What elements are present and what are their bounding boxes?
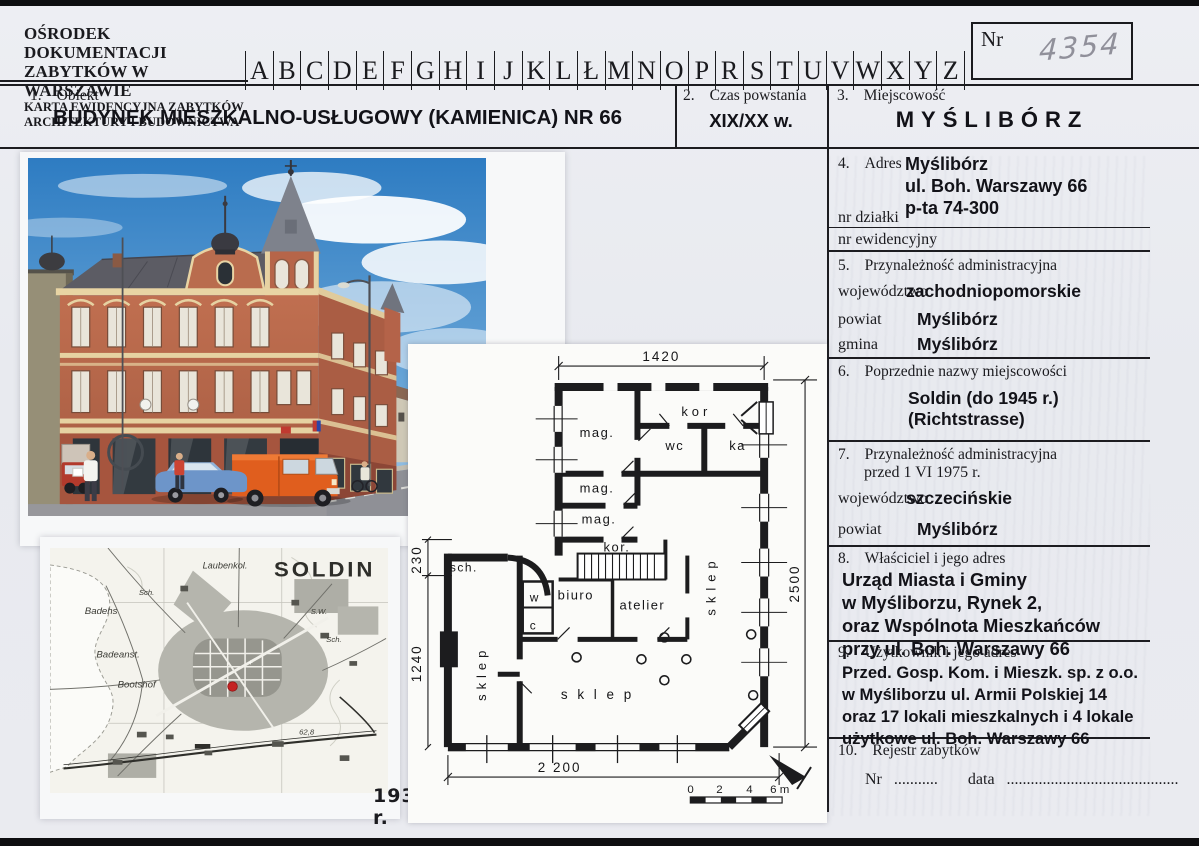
section-4-label: 4.Adres	[838, 155, 902, 173]
powiat-label: powiat	[838, 311, 882, 329]
scale-tick-label: 2	[716, 784, 722, 796]
card-number-box: Nr 4354	[971, 22, 1133, 80]
scale-bar: 0 2 4 6 m	[687, 784, 789, 803]
room-label-sch: sch.	[450, 561, 478, 575]
town-map-illustration: + Laubenkol.	[50, 548, 388, 793]
section-5-label: 5.Przynależność administracyjna	[838, 257, 1057, 275]
locality-value: MYŚLIBÓRZ	[827, 107, 1157, 133]
section-1-label: 1.Obiekt	[30, 87, 99, 105]
voivodeship-1975-value: szczecińskie	[906, 488, 1012, 509]
room-label-mag2: mag.	[580, 481, 615, 496]
room-label-ka: ka	[729, 438, 746, 453]
section-9-label: 9.Użytkownik i jego adres	[838, 644, 1017, 662]
map-label: 62,8	[299, 728, 315, 737]
room-label-sklep-left: sklep	[474, 646, 489, 701]
gmina-value: Myślibórz	[917, 334, 998, 355]
room-label-kor-mid: kor.	[604, 540, 631, 555]
stairs	[578, 554, 666, 580]
gmina-label: gmina	[838, 336, 878, 354]
dim-label-right: 2500	[787, 565, 802, 603]
section-7-label-line2: przed 1 VI 1975 r.	[864, 464, 981, 482]
map-label: Sch.	[139, 588, 154, 597]
room-label-sklep-main: s k l e p	[561, 687, 634, 702]
address-value: Myślibórz ul. Boh. Warszawy 66 p-ta 74-3…	[905, 153, 1087, 219]
dim-label-230: 230	[409, 545, 424, 573]
floorplan-drawing: 0 2 4 6 m 1420 2500 2 200 230 1240 mag. …	[408, 344, 827, 823]
scale-tick-label: 6 m	[770, 784, 789, 796]
object-name-value: BUDYNEK MIESZKALNO-USŁUGOWY (KAMIENICA) …	[0, 106, 675, 130]
construction-time-value: XIX/XX w.	[675, 110, 827, 132]
heritage-record-card: OŚRODEK DOKUMENTACJI ZABYTKÓW W WARSZAWI…	[0, 6, 1199, 838]
nr-label: Nr	[981, 27, 1003, 52]
map-label: Badeanst.	[96, 649, 139, 660]
map-title: SOLDIN	[274, 557, 375, 582]
room-label-sklep-right: sklep	[703, 555, 718, 615]
voivodeship-value: zachodniopomorskie	[906, 281, 1081, 302]
map-label: Bootshof	[118, 680, 157, 691]
scale-tick-label: 0	[687, 784, 693, 796]
church-mark: +	[248, 657, 253, 667]
map-label: Sch.	[326, 635, 341, 644]
room-label-w: w	[529, 590, 540, 604]
plot-number-label: nr działki	[838, 209, 899, 227]
satellite-dish	[188, 399, 199, 410]
section-7-label: 7.Przynależność administracyjna	[838, 446, 1057, 464]
section-6-label: 6.Poprzednie nazwy miejscowości	[838, 363, 1067, 381]
powiat-1975-label: powiat	[838, 521, 882, 539]
section-3-label: 3.Miejscowość	[837, 87, 945, 105]
room-label-biuro: biuro	[558, 587, 594, 602]
section-2-label: 2.Czas powstania	[683, 87, 806, 105]
powiat-value: Myślibórz	[917, 309, 998, 330]
dim-label-1240: 1240	[409, 644, 424, 682]
building-location-marker	[228, 682, 238, 691]
map-label: Laubenkol.	[203, 561, 248, 571]
scan-edge-bottom	[0, 838, 1199, 846]
record-number-label: nr ewidencyjny	[838, 231, 937, 249]
room-label-kor: kor	[681, 404, 711, 419]
map-label: S.W.	[311, 607, 327, 616]
registry-entry-row: Nr ........... data ....................…	[865, 771, 1179, 789]
satellite-dish	[140, 399, 151, 410]
former-names-value: Soldin (do 1945 r.) (Richtstrasse)	[908, 388, 1059, 430]
section-8-label: 8.Właściciel i jego adres	[838, 550, 1005, 568]
room-label-atelier: atelier	[619, 597, 665, 612]
nr-handwritten-value: 4354	[1038, 26, 1121, 67]
room-label-c: c	[530, 618, 537, 632]
floorplan-sheet: 0 2 4 6 m 1420 2500 2 200 230 1240 mag. …	[408, 344, 827, 823]
room-label-wc: wc	[664, 438, 684, 453]
dim-label-bottom: 2 200	[538, 760, 582, 775]
map-backing-sheet: + Laubenkol.	[40, 537, 400, 819]
map-label: Badehs	[85, 606, 118, 617]
scale-tick-label: 4	[746, 784, 753, 796]
dim-label-top: 1420	[642, 349, 680, 364]
room-label-mag3: mag.	[582, 512, 617, 527]
org-line: OŚRODEK DOKUMENTACJI	[24, 24, 252, 62]
powiat-1975-value: Myślibórz	[917, 519, 998, 540]
user-value: Przed. Gosp. Kom. i Mieszk. sp. z o.o. w…	[842, 662, 1138, 750]
section-10-label: 10.Rejestr zabytków	[838, 742, 980, 760]
room-label-mag1: mag.	[580, 425, 615, 440]
